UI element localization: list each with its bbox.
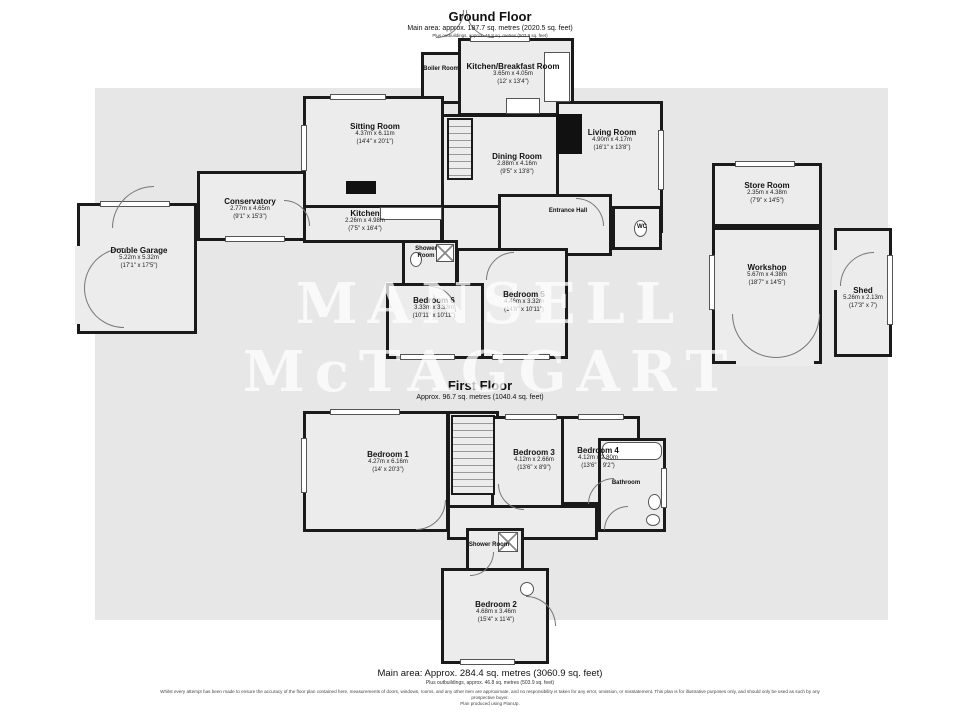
watermark-line1: MANSELL xyxy=(0,276,980,332)
room-dim-metric: 4.12m x 2.80m xyxy=(556,455,640,463)
window xyxy=(578,414,624,420)
room-name: Store Room xyxy=(732,181,802,190)
label-kitchen: Kitchen 2.26m x 4.98m (7'5" x 16'4") xyxy=(318,209,412,233)
footer-outbuildings: Plus outbuildings, approx. 46.8 sq. metr… xyxy=(280,680,700,687)
window xyxy=(225,236,285,242)
basin-bed2-icon xyxy=(520,582,534,596)
room-name: Shower Room xyxy=(468,542,510,549)
stairs-first xyxy=(451,415,495,495)
watermark-line2: McTAGGART xyxy=(0,344,980,400)
room-name: Boiler Room xyxy=(423,66,459,73)
label-shower-gf: Shower Room xyxy=(406,246,446,260)
room-name: Bathroom xyxy=(600,480,652,487)
room-dim-metric: 2.77m x 4.65m xyxy=(202,206,298,214)
window xyxy=(301,438,307,493)
ground-floor-title: Ground Floor xyxy=(330,10,650,24)
room-dim-metric: 5.22m x 5.32m xyxy=(98,255,180,263)
room-dim-imperial: (12' x 13'4") xyxy=(458,79,568,87)
room-dim-imperial: (14'4" x 20'1") xyxy=(340,139,410,147)
room-name: Conservatory xyxy=(202,197,298,206)
room-dim-imperial: (7'5" x 16'4") xyxy=(318,226,412,234)
room-dim-metric: 2.26m x 4.98m xyxy=(318,218,412,226)
room-dim-metric: 2.88m x 4.16m xyxy=(486,161,548,169)
room-name: Shower Room xyxy=(406,246,446,260)
room-dim-imperial: (16'1" x 13'8") xyxy=(580,145,644,153)
toilet-ff-icon xyxy=(648,494,661,510)
fireplace-sitting xyxy=(346,181,376,194)
basin-ff-icon xyxy=(646,514,660,526)
label-bedroom-4: Bedroom 4 4.12m x 2.80m (13'6" x 9'2") xyxy=(556,446,640,470)
room-name: Kitchen xyxy=(318,209,412,218)
label-entrance-hall: Entrance Hall xyxy=(538,208,598,215)
window xyxy=(301,125,307,171)
ground-floor-area: Main area: approx. 187.7 sq. metres (202… xyxy=(330,24,650,33)
chimney-living xyxy=(556,114,582,154)
stove xyxy=(506,98,540,114)
label-store: Store Room 2.35m x 4.38m (7'9" x 14'5") xyxy=(732,181,802,205)
room-dim-imperial: (15'4" x 11'4") xyxy=(446,617,546,625)
room-name: Bedroom 4 xyxy=(556,446,640,455)
room-name: Bedroom 2 xyxy=(446,600,546,609)
room-name: Kitchen/Breakfast Room xyxy=(458,62,568,71)
window xyxy=(330,409,400,415)
room-dim-metric: 2.35m x 4.38m xyxy=(732,190,802,198)
room-dim-imperial: (9'1" x 15'3") xyxy=(202,214,298,222)
floorplan-canvas: Ground Floor Main area: approx. 187.7 sq… xyxy=(0,0,980,712)
footer-main-area: Main area: Approx. 284.4 sq. metres (306… xyxy=(280,669,700,680)
room-dim-imperial: (7'9" x 14'5") xyxy=(732,198,802,206)
footer-area-block: Main area: Approx. 284.4 sq. metres (306… xyxy=(280,669,700,687)
label-bedroom-2: Bedroom 2 4.68m x 3.46m (15'4" x 11'4") xyxy=(446,600,546,624)
label-boiler: Boiler Room xyxy=(423,66,459,73)
label-sitting: Sitting Room 4.37m x 6.11m (14'4" x 20'1… xyxy=(340,122,410,146)
label-conservatory: Conservatory 2.77m x 4.65m (9'1" x 15'3"… xyxy=(202,197,298,221)
room-dim-metric: 4.68m x 3.46m xyxy=(446,609,546,617)
room-name: Sitting Room xyxy=(340,122,410,131)
footer-disclaimer: Whilst every attempt has been made to en… xyxy=(160,689,820,701)
room-dim-metric: 4.90m x 4.17m xyxy=(580,137,644,145)
room-name: Entrance Hall xyxy=(538,208,598,215)
room-dim-metric: 4.27m x 6.16m xyxy=(336,459,440,467)
label-double-garage: Double Garage 5.22m x 5.32m (17'1" x 17'… xyxy=(98,246,180,270)
room-name: Dining Room xyxy=(486,152,548,161)
label-bathroom: Bathroom xyxy=(600,480,652,487)
window xyxy=(505,414,557,420)
label-living: Living Room 4.90m x 4.17m (16'1" x 13'8"… xyxy=(580,128,644,152)
room-name: Bedroom 1 xyxy=(336,450,440,459)
label-shower-ff: Shower Room xyxy=(468,542,510,549)
room-name: Double Garage xyxy=(98,246,180,255)
room-name: WC xyxy=(630,224,654,231)
room-dim-imperial: (13'6" x 9'2") xyxy=(556,463,640,471)
room-dim-metric: 4.37m x 6.11m xyxy=(340,131,410,139)
label-bedroom-1: Bedroom 1 4.27m x 6.16m (14' x 20'3") xyxy=(336,450,440,474)
ground-floor-outbuildings: Plus outbuildings, approx. 46.8 sq. metr… xyxy=(330,33,650,39)
footer-produced: Plan produced using PlanUp. xyxy=(280,701,700,706)
label-wc: WC xyxy=(630,224,654,231)
room-dim-metric: 3.65m x 4.05m xyxy=(458,71,568,79)
window xyxy=(330,94,386,100)
window xyxy=(658,130,664,190)
stairs-ground xyxy=(447,118,473,180)
window xyxy=(661,468,667,508)
room-dim-imperial: (14' x 20'3") xyxy=(336,467,440,475)
ground-floor-title-block: Ground Floor Main area: approx. 187.7 sq… xyxy=(330,10,650,39)
window xyxy=(735,161,795,167)
room-dim-imperial: (9'5" x 13'8") xyxy=(486,169,548,177)
label-kitchen-breakfast: Kitchen/Breakfast Room 3.65m x 4.05m (12… xyxy=(458,62,568,86)
room-name: Living Room xyxy=(580,128,644,137)
window xyxy=(460,659,515,665)
room-dim-imperial: (17'1" x 17'5") xyxy=(98,263,180,271)
room-name: Workshop xyxy=(716,263,818,272)
label-dining: Dining Room 2.88m x 4.16m (9'5" x 13'8") xyxy=(486,152,548,176)
